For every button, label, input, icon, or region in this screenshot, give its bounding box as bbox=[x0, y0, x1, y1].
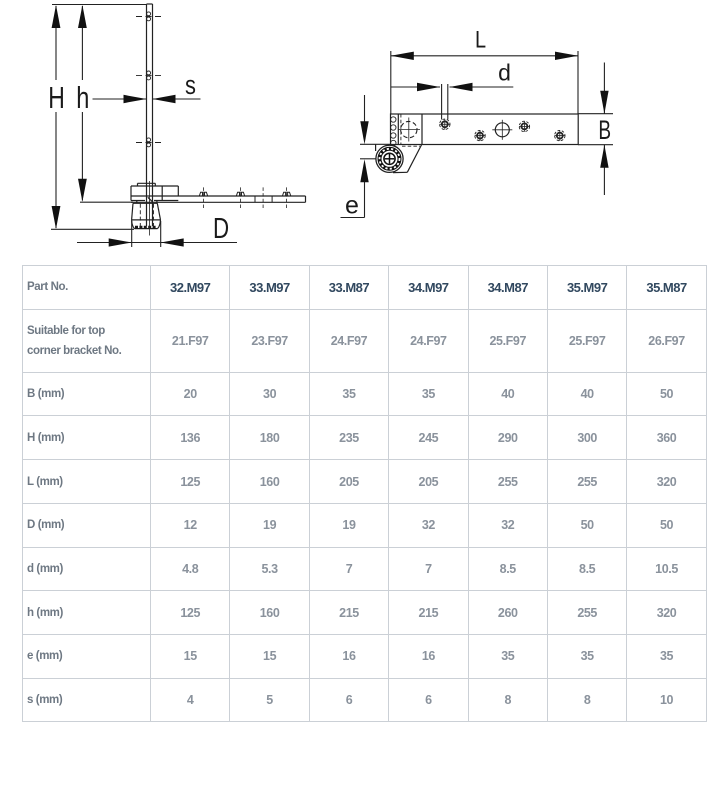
svg-text:s: s bbox=[185, 71, 196, 101]
svg-text:d: d bbox=[498, 60, 511, 86]
svg-text:h: h bbox=[76, 80, 89, 115]
svg-text:e: e bbox=[345, 191, 359, 219]
svg-text:H: H bbox=[48, 80, 65, 115]
svg-text:B: B bbox=[598, 115, 611, 145]
svg-text:D: D bbox=[213, 213, 229, 244]
svg-text:L: L bbox=[475, 26, 486, 53]
